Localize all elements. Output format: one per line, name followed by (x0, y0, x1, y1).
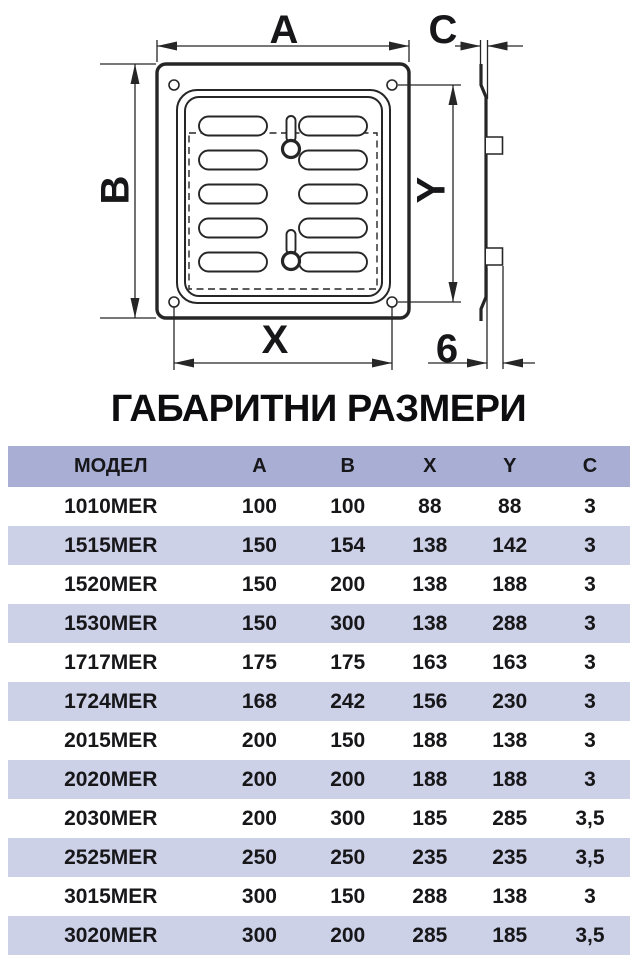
screw-hole (169, 80, 179, 90)
column-header-a: A (214, 446, 305, 487)
value-cell: 156 (391, 682, 469, 721)
model-cell: 2015MER (8, 721, 215, 760)
value-cell: 3 (550, 682, 629, 721)
value-cell: 163 (469, 643, 550, 682)
value-cell: 100 (305, 487, 391, 526)
value-cell: 242 (305, 682, 391, 721)
value-cell: 150 (214, 604, 305, 643)
table-row: 2030MER2003001852853,5 (8, 799, 630, 838)
value-cell: 3 (550, 721, 629, 760)
grille-drawing: A B C X (0, 0, 637, 374)
value-cell: 288 (469, 604, 550, 643)
model-cell: 3020MER (8, 916, 215, 955)
model-cell: 2030MER (8, 799, 215, 838)
label-x: X (262, 318, 289, 362)
label-c: C (429, 8, 458, 52)
model-cell: 1520MER (8, 565, 215, 604)
dimensions-table: МОДЕЛ A B X Y C 1010MER100100888831515ME… (8, 446, 630, 955)
page-title: ГАБАРИТНИ РАЗМЕРИ (0, 388, 637, 431)
table-row: 2015MER2001501881383 (8, 721, 630, 760)
screw-hole (169, 297, 179, 307)
table-row: 1010MER10010088883 (8, 487, 630, 526)
value-cell: 200 (214, 721, 305, 760)
value-cell: 200 (305, 565, 391, 604)
value-cell: 163 (391, 643, 469, 682)
table-row: 3015MER3001502881383 (8, 877, 630, 916)
value-cell: 142 (469, 526, 550, 565)
table-header-row: МОДЕЛ A B X Y C (8, 446, 630, 487)
column-header-b: B (305, 446, 391, 487)
model-cell: 1515MER (8, 526, 215, 565)
dimension-a: A (157, 8, 409, 62)
model-cell: 1717MER (8, 643, 215, 682)
model-cell: 1724MER (8, 682, 215, 721)
column-header-model: МОДЕЛ (8, 446, 215, 487)
value-cell: 285 (469, 799, 550, 838)
value-cell: 150 (214, 565, 305, 604)
value-cell: 88 (469, 487, 550, 526)
value-cell: 3 (550, 760, 629, 799)
side-tab (486, 137, 503, 154)
table-row: 2020MER2002001881883 (8, 760, 630, 799)
table-row: 1724MER1682421562303 (8, 682, 630, 721)
value-cell: 175 (305, 643, 391, 682)
value-cell: 285 (391, 916, 469, 955)
value-cell: 138 (391, 604, 469, 643)
label-flange-depth: 6 (436, 327, 458, 371)
value-cell: 138 (469, 877, 550, 916)
value-cell: 3,5 (550, 916, 629, 955)
value-cell: 88 (391, 487, 469, 526)
value-cell: 188 (469, 565, 550, 604)
side-tab (486, 248, 503, 265)
model-cell: 1010MER (8, 487, 215, 526)
screw-hole (387, 297, 397, 307)
column-header-x: X (391, 446, 469, 487)
value-cell: 250 (305, 838, 391, 877)
value-cell: 3,5 (550, 799, 629, 838)
value-cell: 3 (550, 487, 629, 526)
value-cell: 154 (305, 526, 391, 565)
outer-frame (157, 64, 409, 318)
value-cell: 200 (214, 799, 305, 838)
value-cell: 185 (391, 799, 469, 838)
value-cell: 230 (469, 682, 550, 721)
value-cell: 188 (391, 760, 469, 799)
value-cell: 200 (305, 760, 391, 799)
model-cell: 1530MER (8, 604, 215, 643)
column-header-y: Y (469, 446, 550, 487)
value-cell: 185 (469, 916, 550, 955)
value-cell: 3 (550, 643, 629, 682)
model-cell: 2525MER (8, 838, 215, 877)
value-cell: 235 (469, 838, 550, 877)
value-cell: 100 (214, 487, 305, 526)
model-cell: 2020MER (8, 760, 215, 799)
value-cell: 288 (391, 877, 469, 916)
value-cell: 188 (469, 760, 550, 799)
value-cell: 200 (214, 760, 305, 799)
value-cell: 175 (214, 643, 305, 682)
label-b: B (93, 176, 137, 205)
side-profile (481, 64, 486, 321)
value-cell: 3 (550, 604, 629, 643)
table-row: 1515MER1501541381423 (8, 526, 630, 565)
value-cell: 235 (391, 838, 469, 877)
table-row: 3020MER3002002851853,5 (8, 916, 630, 955)
value-cell: 200 (305, 916, 391, 955)
value-cell: 3,5 (550, 838, 629, 877)
value-cell: 300 (305, 799, 391, 838)
value-cell: 300 (305, 604, 391, 643)
value-cell: 3 (550, 526, 629, 565)
label-a: A (270, 8, 299, 52)
value-cell: 168 (214, 682, 305, 721)
value-cell: 138 (391, 565, 469, 604)
value-cell: 188 (391, 721, 469, 760)
value-cell: 250 (214, 838, 305, 877)
value-cell: 150 (305, 877, 391, 916)
value-cell: 138 (391, 526, 469, 565)
side-view (481, 64, 503, 321)
table-row: 2525MER2502502352353,5 (8, 838, 630, 877)
label-y: Y (409, 176, 453, 203)
table-row: 1530MER1503001382883 (8, 604, 630, 643)
model-cell: 3015MER (8, 877, 215, 916)
table-body: 1010MER100100888831515MER150154138142315… (8, 487, 630, 955)
value-cell: 150 (214, 526, 305, 565)
screw-hole (387, 80, 397, 90)
column-header-c: C (550, 446, 629, 487)
value-cell: 150 (305, 721, 391, 760)
dimensions-diagram: A B C X (0, 0, 637, 374)
table-row: 1520MER1502001381883 (8, 565, 630, 604)
value-cell: 3 (550, 877, 629, 916)
value-cell: 300 (214, 877, 305, 916)
table-row: 1717MER1751751631633 (8, 643, 630, 682)
front-view (157, 64, 409, 318)
value-cell: 138 (469, 721, 550, 760)
value-cell: 3 (550, 565, 629, 604)
dimension-b: B (93, 64, 156, 318)
value-cell: 300 (214, 916, 305, 955)
